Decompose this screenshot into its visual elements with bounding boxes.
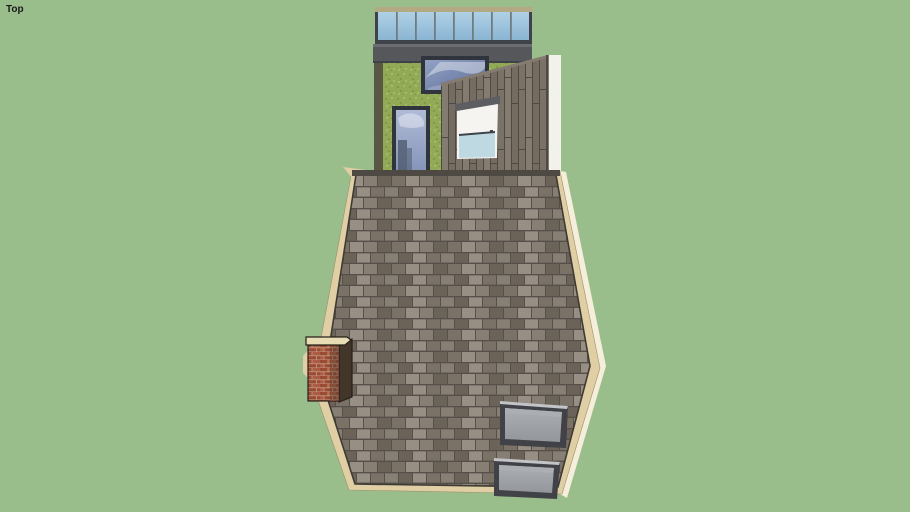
skylight-vertical[interactable] (392, 106, 430, 173)
sketchup-viewport[interactable]: Top (0, 0, 910, 512)
roof-ridge (352, 170, 560, 176)
chimney-side-face (339, 339, 352, 402)
view-label: Top (6, 4, 24, 15)
balustrade-base-rail (375, 40, 532, 44)
green-roof-left-edge (374, 62, 383, 174)
clad-wall-window[interactable] (455, 96, 500, 159)
chimney-brick-shadow (330, 345, 339, 401)
balustrade-top-cap (375, 7, 532, 12)
glass-balustrade[interactable] (375, 7, 532, 44)
clad-wall-right-edge (546, 55, 549, 174)
roof-window-upper[interactable] (500, 401, 568, 448)
chimney[interactable] (303, 337, 352, 402)
window-glass (459, 132, 495, 158)
white-wall-strip[interactable] (549, 55, 561, 177)
window-handle (490, 130, 493, 133)
skylight-b-building-reflection2 (407, 148, 412, 170)
model-canvas[interactable] (0, 0, 910, 512)
chimney-crown (306, 337, 351, 345)
roof-window-lower[interactable] (494, 458, 560, 499)
skylight-b-building-reflection (398, 140, 407, 170)
main-roof[interactable] (318, 167, 606, 498)
